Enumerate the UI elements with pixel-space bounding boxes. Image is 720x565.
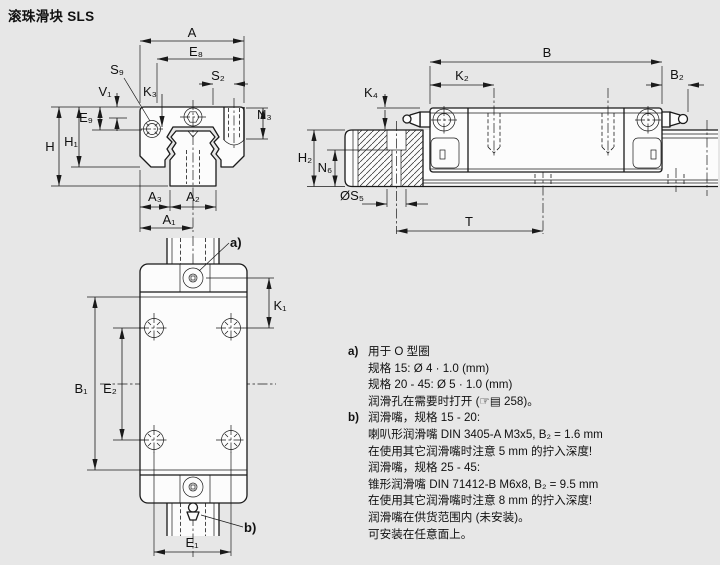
note-line: 规格 15: Ø 4 · 1.0 (mm) [348,361,716,378]
dim-label-H1: H₁ [64,134,78,149]
dim-label-A2: A₂ [186,189,200,204]
callout-a: a) [230,235,242,250]
dim-label-K1: K₁ [273,298,287,313]
dim-label-A3: A₃ [148,189,162,204]
dim-label-N6: N₆ [318,160,333,175]
note-marker-b: b) [348,410,368,427]
dim-label-N3: N₃ [257,107,272,122]
note-line: a) 用于 O 型圈 [348,344,716,361]
dim-label-K4: K₄ [364,85,378,100]
note-line: 润滑嘴，规格 25 - 45: [348,460,716,477]
dim-label-V1: V₁ [98,84,112,99]
dim-label-S9: S₉ [110,62,124,77]
dim-label-K2: K₂ [455,68,469,83]
dim-label-S5: ØS₅ [340,188,364,203]
note-line: 规格 20 - 45: Ø 5 · 1.0 (mm) [348,377,716,394]
front-view-drawing: A E₈ S₂ S₉ N₃ H H₁ E₉ [45,25,271,232]
note-line: 润滑孔在需要时打开 (☞▤ 258)。 [348,394,716,411]
top-view-drawing: a) b) B₁ E₂ K₁ E₁ [74,235,287,557]
dim-label-B: B [543,45,552,60]
note-line: 在使用其它润滑嘴时注意 5 mm 的拧入深度! [348,444,716,461]
dim-label-H: H [45,139,54,154]
dim-label-H2: H₂ [298,150,312,165]
side-view-drawing: B K₂ B₂ K₄ H₂ N₆ ØS₅ [298,45,718,234]
dim-label-S2: S₂ [211,68,225,83]
note-line: b) 润滑嘴，规格 15 - 20: [348,410,716,427]
dim-label-K3: K₃ [143,84,157,99]
note-line: 锥形润滑嘴 DIN 71412-B M6x8, B₂ = 9.5 mm [348,477,716,494]
dim-label-A1: A₁ [162,212,176,227]
dim-label-E8: E₈ [189,44,203,59]
footnotes: a) 用于 O 型圈 规格 15: Ø 4 · 1.0 (mm) 规格 20 -… [348,344,716,543]
note-marker-a: a) [348,344,368,361]
catalog-page: 滚珠滑块 SLS [0,0,720,565]
note-line: 在使用其它润滑嘴时注意 8 mm 的拧入深度! [348,493,716,510]
note-line: 喇叭形润滑嘴 DIN 3405-A M3x5, B₂ = 1.6 mm [348,427,716,444]
callout-b: b) [244,520,256,535]
note-line: 可安装在任意面上。 [348,527,716,544]
note-line: 润滑嘴在供货范围内 (未安装)。 [348,510,716,527]
dim-label-E1: E₁ [185,535,199,550]
dim-label-A: A [188,25,197,40]
dim-label-E9: E₉ [79,110,93,125]
dim-label-T: T [465,214,473,229]
dim-label-B1: B₁ [74,381,88,396]
dim-label-E2: E₂ [103,381,117,396]
dim-label-B2: B₂ [670,67,684,82]
